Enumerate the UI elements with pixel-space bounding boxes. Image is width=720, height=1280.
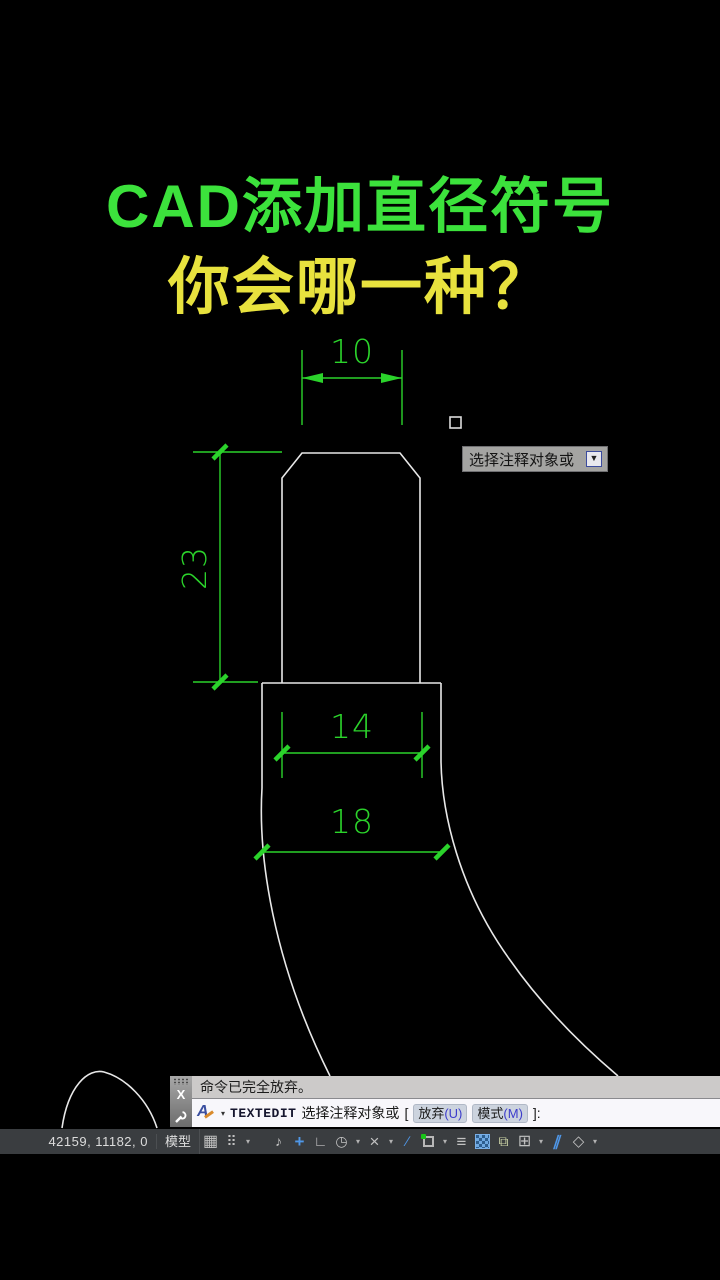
bracket-close: ]:: [533, 1105, 541, 1121]
option-undo-key: (U): [444, 1106, 462, 1121]
dimension-23-value: 23: [175, 546, 214, 590]
object-snap-tracking-icon[interactable]: ∕: [397, 1129, 418, 1154]
polar-tracking-icon[interactable]: ◷: [331, 1129, 352, 1154]
object-snap-icon[interactable]: [418, 1129, 439, 1154]
status-bar: 42159, 11182, 0 模型 ▦ ⠿ ▾ ♪ + ∟ ◷ ▾ × ▾ ∕…: [0, 1129, 720, 1154]
option-mode[interactable]: 模式(M): [472, 1104, 528, 1123]
dynamic-ucs-icon[interactable]: ∥: [547, 1129, 568, 1154]
dimension-10[interactable]: 10: [302, 332, 402, 425]
grid-display-icon[interactable]: ▦: [200, 1129, 221, 1154]
transparency-icon[interactable]: [472, 1129, 493, 1154]
selection-cycling-icon[interactable]: ⧉: [493, 1129, 514, 1154]
drag-grip-icon[interactable]: [173, 1078, 189, 1085]
object-snap-dropdown-icon[interactable]: ▾: [439, 1129, 451, 1154]
annotation-visibility-dropdown-icon[interactable]: ▾: [589, 1129, 601, 1154]
command-window-titlebar[interactable]: X: [170, 1076, 192, 1127]
dimension-10-value: 10: [330, 332, 374, 371]
bracket-open: [: [404, 1105, 408, 1121]
dimension-18[interactable]: 18: [255, 802, 449, 859]
part-right-curve: [441, 683, 618, 1076]
3d-object-snap-icon[interactable]: ⊞: [514, 1129, 535, 1154]
model-space-button[interactable]: 模型: [157, 1129, 200, 1154]
pickbox-cursor[interactable]: [450, 417, 461, 428]
isometric-drafting-dropdown-icon[interactable]: ▾: [385, 1129, 397, 1154]
command-window-body: 命令已完全放弃。 A ▾ TEXTEDIT 选择注释对象或 [ 放弃(U) 模式…: [192, 1076, 720, 1127]
part-upper-outline: [282, 453, 420, 683]
snap-mode-icon[interactable]: ⠿: [221, 1129, 242, 1154]
3d-object-snap-dropdown-icon[interactable]: ▾: [535, 1129, 547, 1154]
dynamic-input-icon[interactable]: +: [289, 1129, 310, 1154]
tooltip-text: 选择注释对象或: [469, 449, 574, 470]
command-history-line: 命令已完全放弃。: [192, 1076, 720, 1099]
polar-tracking-dropdown-icon[interactable]: ▾: [352, 1129, 364, 1154]
annotation-visibility-icon[interactable]: ◇: [568, 1129, 589, 1154]
ortho-mode-icon[interactable]: ∟: [310, 1129, 331, 1154]
close-icon[interactable]: X: [170, 1087, 192, 1102]
part-left-curve: [261, 683, 330, 1076]
option-mode-key: (M): [503, 1106, 523, 1121]
lineweight-icon[interactable]: ≡: [451, 1129, 472, 1154]
dimension-18-value: 18: [330, 802, 374, 841]
prompt-text: 选择注释对象或: [301, 1103, 399, 1123]
command-line-icon[interactable]: A: [196, 1103, 216, 1123]
dimension-14[interactable]: 14: [275, 707, 429, 778]
part-bottom-loop: [62, 1071, 157, 1128]
command-line-window: X 命令已完全放弃。 A ▾ TEXTEDIT 选择注释对象或 [ 放弃(U) …: [170, 1076, 720, 1127]
active-command-name: TEXTEDIT: [230, 1106, 296, 1121]
snap-mode-dropdown-icon[interactable]: ▾: [242, 1129, 254, 1154]
option-undo[interactable]: 放弃(U): [413, 1104, 467, 1123]
command-input-line[interactable]: A ▾ TEXTEDIT 选择注释对象或 [ 放弃(U) 模式(M) ]:: [192, 1099, 720, 1127]
wrench-icon[interactable]: [174, 1110, 188, 1124]
down-arrow-key-icon[interactable]: ▼: [586, 451, 602, 467]
recent-commands-caret-icon[interactable]: ▾: [221, 1109, 225, 1118]
cursor-prompt-tooltip: 选择注释对象或 ▼: [462, 446, 608, 472]
coordinates-readout[interactable]: 42159, 11182, 0: [0, 1134, 157, 1149]
dimension-23[interactable]: 23: [175, 445, 282, 689]
autocad-screen: CAD添加直径符号 你会哪一种？ 10 23 14: [0, 0, 720, 1280]
isometric-drafting-icon[interactable]: ×: [364, 1129, 385, 1154]
dimension-14-value: 14: [330, 707, 374, 746]
infer-constraints-icon[interactable]: ♪: [268, 1129, 289, 1154]
